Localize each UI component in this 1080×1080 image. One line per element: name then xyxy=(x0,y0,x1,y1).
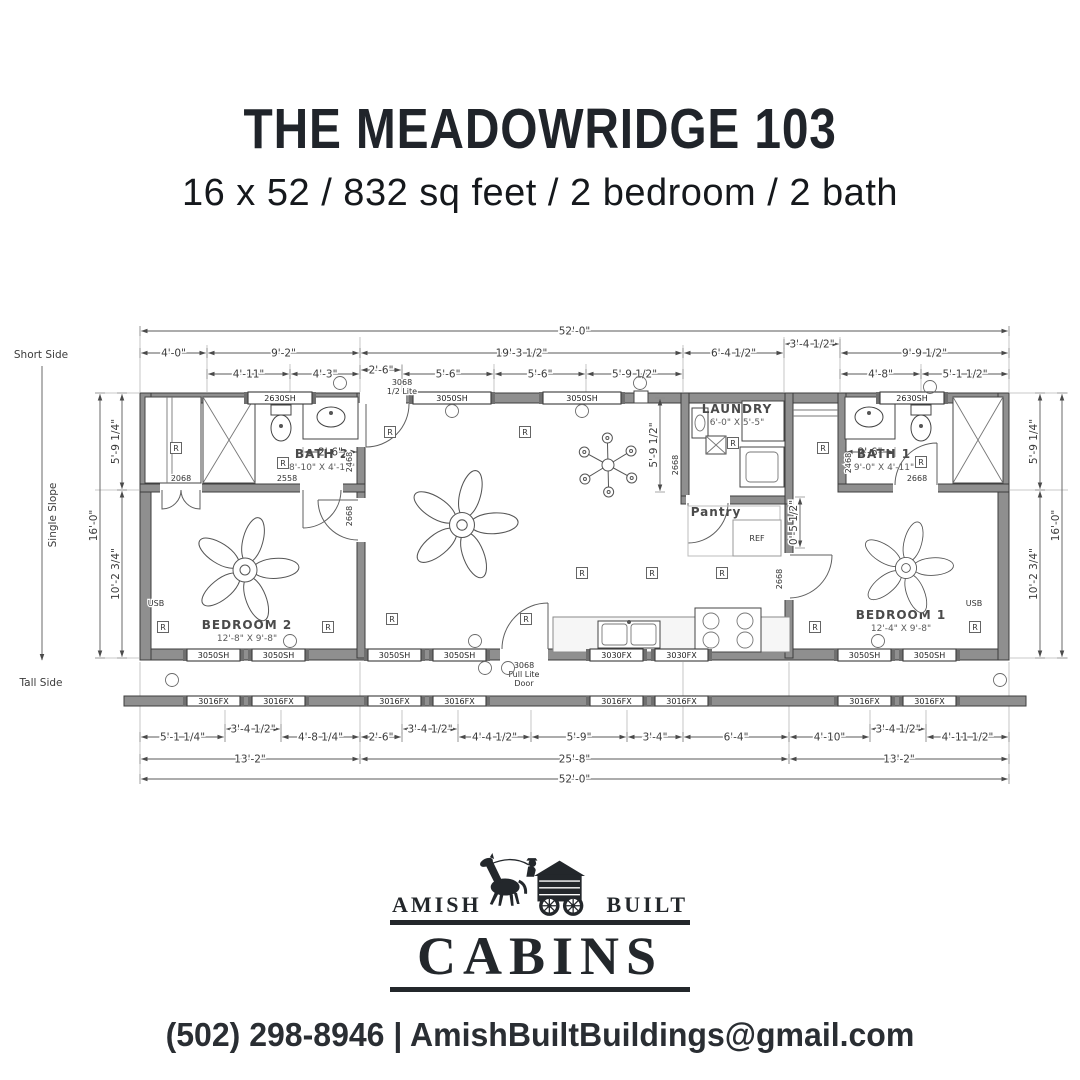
window-post xyxy=(240,696,244,706)
room-size-label: 12'-8" X 9'-8" xyxy=(217,634,277,644)
recessed-light-letter: R xyxy=(387,428,393,437)
window-post xyxy=(248,649,252,661)
window-label: 3050SH xyxy=(566,394,597,403)
horse-and-wagon-icon xyxy=(476,853,604,921)
window-label: 3050SH xyxy=(444,651,475,660)
recessed-light-letter: R xyxy=(523,615,529,624)
logo-word-amish: AMISH xyxy=(392,894,482,916)
plan-label: 2468 xyxy=(345,452,354,472)
plan-label: 2668 xyxy=(907,474,927,483)
horse-tail xyxy=(519,881,526,894)
room-label: BEDROOM 2 xyxy=(202,618,292,632)
window-label: 3050SH xyxy=(379,651,410,660)
light-symbol xyxy=(284,635,297,648)
window-post xyxy=(586,649,590,661)
dim-label: 6'-4" xyxy=(724,732,749,744)
contact-bar: (502) 298-8946 | AmishBuiltBuildings@gma… xyxy=(0,1016,1080,1054)
window-post xyxy=(305,649,309,661)
dim-label: 4'-10" xyxy=(814,732,846,744)
plan-label: Door xyxy=(514,679,534,688)
window-post xyxy=(899,696,903,706)
dim-label: 4'-4 1/2" xyxy=(472,732,517,744)
plan-label: USB xyxy=(966,599,982,608)
window-post xyxy=(891,649,895,661)
light-symbol xyxy=(469,635,482,648)
window-label: 3016FX xyxy=(379,697,410,706)
dim-label: 13'-2" xyxy=(234,754,266,766)
room-label: BATH 2 xyxy=(295,447,349,461)
dim-label: 5'-9 1/4" xyxy=(1028,419,1040,464)
dim-label: 2'-6" xyxy=(369,365,394,377)
dim-label: 52'-0" xyxy=(559,774,591,786)
dim-label: 4'-3" xyxy=(313,369,338,381)
dim-label: 3'-4 1/2" xyxy=(789,339,834,351)
window-label: 3016FX xyxy=(914,697,945,706)
kitchen-fixtures xyxy=(553,608,790,652)
closet-left xyxy=(145,397,201,483)
cabin-roof xyxy=(534,861,585,876)
window-post xyxy=(486,649,490,661)
plan-label: 2558 xyxy=(277,474,297,483)
plan-label: 1/2 Lite xyxy=(387,387,417,396)
window-label: 3030FX xyxy=(666,651,697,660)
room-label: BEDROOM 1 xyxy=(856,608,946,622)
dim-label: 5'-1 1/2" xyxy=(942,369,987,381)
dim-label: 9'-2" xyxy=(271,348,296,360)
plan-label: 2668 xyxy=(775,569,784,589)
window-post xyxy=(183,696,187,706)
tall-side-label: Tall Side xyxy=(19,677,63,689)
recessed-light-letter: R xyxy=(812,623,818,632)
dim-label: 3'-4 1/2" xyxy=(875,724,920,736)
window-label: 3016FX xyxy=(666,697,697,706)
window-post xyxy=(643,696,647,706)
driver-hat xyxy=(526,858,537,861)
reins xyxy=(491,860,529,865)
plan-label: 2668 xyxy=(345,506,354,526)
window-label: 2630SH xyxy=(264,394,295,403)
window-label: 3050SH xyxy=(914,651,945,660)
window-post xyxy=(586,696,590,706)
dim-label: 5'-9" xyxy=(567,732,592,744)
dim-label: 6'-4 1/2" xyxy=(711,348,756,360)
room-label: Pantry xyxy=(691,505,742,519)
window-post xyxy=(834,649,838,661)
kitchen-sink xyxy=(598,621,660,648)
recessed-light-letter: R xyxy=(389,615,395,624)
dim-label: 5'-6" xyxy=(528,369,553,381)
ceiling-fan xyxy=(409,468,518,581)
window-label: 3016FX xyxy=(444,697,475,706)
recessed-light-letter: R xyxy=(719,569,725,578)
recessed-light-letter: R xyxy=(280,459,286,468)
plan-label: 3068 xyxy=(392,378,412,387)
recessed-light-letter: R xyxy=(173,444,179,453)
window-post xyxy=(539,392,543,404)
plan-label: 2068 xyxy=(171,474,191,483)
dim-label: 5'-9 1/2" xyxy=(612,369,657,381)
window-post xyxy=(956,696,960,706)
page: THE MEADOWRIDGE 103 16 x 52 / 832 sq fee… xyxy=(0,0,1080,1080)
recessed-light-letter: R xyxy=(972,623,978,632)
window-post xyxy=(240,649,244,661)
light-symbol xyxy=(576,405,589,418)
window-post xyxy=(491,392,495,404)
window-post xyxy=(364,696,368,706)
logo-rule-bottom xyxy=(390,987,690,992)
window-post xyxy=(429,696,433,706)
window-label: 3050SH xyxy=(436,394,467,403)
plan-label: 3068 xyxy=(514,661,534,670)
light-symbol xyxy=(334,377,347,390)
front-entry-door xyxy=(366,404,409,447)
recessed-light-letter: R xyxy=(325,623,331,632)
window-post xyxy=(876,392,880,404)
window-post xyxy=(244,392,248,404)
light-symbol xyxy=(446,405,459,418)
dim-label: 3'-4 1/2" xyxy=(407,724,452,736)
dim-label: 52'-0" xyxy=(559,326,591,338)
dim-label: 5'-1 1/4" xyxy=(160,732,205,744)
window-post xyxy=(621,392,625,404)
wall-stub xyxy=(634,391,648,403)
light-symbol xyxy=(166,674,179,687)
single-slope-label: Single Slope xyxy=(47,483,59,548)
light-symbol xyxy=(479,662,492,675)
dim-label: 9'-9 1/2" xyxy=(902,348,947,360)
dim-label: 3'-4 1/2" xyxy=(230,724,275,736)
dim-label: 4'-8" xyxy=(868,369,893,381)
window-label: 3030FX xyxy=(601,651,632,660)
window-label: 3050SH xyxy=(849,651,880,660)
window-post xyxy=(834,696,838,706)
window-post xyxy=(708,696,712,706)
dim-label: 10'-2 3/4" xyxy=(110,548,122,600)
dim-label: 5'-9 1/4" xyxy=(110,419,122,464)
dim-label: 5'-9 1/2" xyxy=(648,422,660,467)
recessed-light-letter: R xyxy=(160,623,166,632)
recessed-light-letter: R xyxy=(649,569,655,578)
contact-text: (502) 298-8946 | AmishBuiltBuildings@gma… xyxy=(166,1016,915,1054)
hall-closet-rod xyxy=(793,410,838,416)
logo-top-row: AMISH xyxy=(390,856,690,918)
sink-bath2 xyxy=(317,407,345,427)
plan-label: REF xyxy=(749,534,765,543)
bath2-door xyxy=(303,490,341,528)
plan-label: 2668 xyxy=(671,455,680,475)
dim-label: 4'-0" xyxy=(161,348,186,360)
window-post xyxy=(899,649,903,661)
dim-label: 25'-8" xyxy=(559,754,591,766)
ceiling-fan xyxy=(861,520,954,616)
short-side-label: Short Side xyxy=(14,349,68,361)
recessed-light-letter: R xyxy=(730,439,736,448)
room-size-label: 9'-0" X 4'-11" xyxy=(854,463,914,473)
ceiling-fan xyxy=(194,515,299,624)
light-symbol xyxy=(872,635,885,648)
light-symbol xyxy=(994,674,1007,687)
dim-label: 0'-5 1/2" xyxy=(788,500,800,545)
window-post xyxy=(486,696,490,706)
sink-bath1 xyxy=(855,407,883,427)
logo-word-built: BUILT xyxy=(607,894,688,916)
window-post xyxy=(421,649,425,661)
dim-label: 5'-6" xyxy=(436,369,461,381)
recessed-light-letter: R xyxy=(579,569,585,578)
dim-label: 3'-4" xyxy=(643,732,668,744)
window-post xyxy=(651,696,655,706)
window-post xyxy=(305,696,309,706)
room-size-label: 12'-4" X 9'-8" xyxy=(871,624,931,634)
dim-label: 16'-0" xyxy=(88,510,100,542)
window-post xyxy=(364,649,368,661)
dim-label: 4'-8 1/4" xyxy=(298,732,343,744)
window-post xyxy=(421,696,425,706)
window-post xyxy=(429,649,433,661)
plan-label: 2468 xyxy=(844,453,853,473)
window-label: 3050SH xyxy=(198,651,229,660)
dim-label: 10'-2 3/4" xyxy=(1028,548,1040,600)
window-post xyxy=(651,649,655,661)
window-label: 3016FX xyxy=(263,697,294,706)
plan-label: USB xyxy=(148,599,164,608)
dim-label: 4'-11" xyxy=(233,369,265,381)
dim-label: 2'-6" xyxy=(369,732,394,744)
window-label: 3016FX xyxy=(198,697,229,706)
bedroom1-door xyxy=(790,555,832,598)
rear-entry-door xyxy=(502,603,548,649)
washer xyxy=(740,447,784,487)
window-label: 3050SH xyxy=(263,651,294,660)
dim-label: 16'-0" xyxy=(1050,510,1062,542)
dim-label: 19'-3 1/2" xyxy=(496,348,548,360)
driver-body xyxy=(526,866,535,877)
recessed-light-letter: R xyxy=(522,428,528,437)
window-post xyxy=(944,392,948,404)
window-post xyxy=(312,392,316,404)
toilet-tank-bath2 xyxy=(271,405,291,415)
window-post xyxy=(248,696,252,706)
room-label: BATH 1 xyxy=(857,447,911,461)
chandelier xyxy=(579,433,636,497)
window-post xyxy=(891,696,895,706)
company-logo: AMISH xyxy=(390,856,690,994)
room-size-label: 6'-0" X 5'-5" xyxy=(710,418,765,428)
window-post xyxy=(956,649,960,661)
dim-label: 4'-11 1/2" xyxy=(942,732,994,744)
window-label: 3016FX xyxy=(849,697,880,706)
recessed-light-letter: R xyxy=(820,444,826,453)
window-label: 3016FX xyxy=(601,697,632,706)
recessed-light-letter: R xyxy=(918,458,924,467)
window-post xyxy=(643,649,647,661)
logo-word-cabins: CABINS xyxy=(390,927,690,985)
window-post xyxy=(183,649,187,661)
toilet-tank-bath1 xyxy=(911,405,931,415)
window-post xyxy=(708,649,712,661)
room-label: LAUNDRY xyxy=(702,402,773,416)
dim-label: 13'-2" xyxy=(883,754,915,766)
window-label: 2630SH xyxy=(896,394,927,403)
